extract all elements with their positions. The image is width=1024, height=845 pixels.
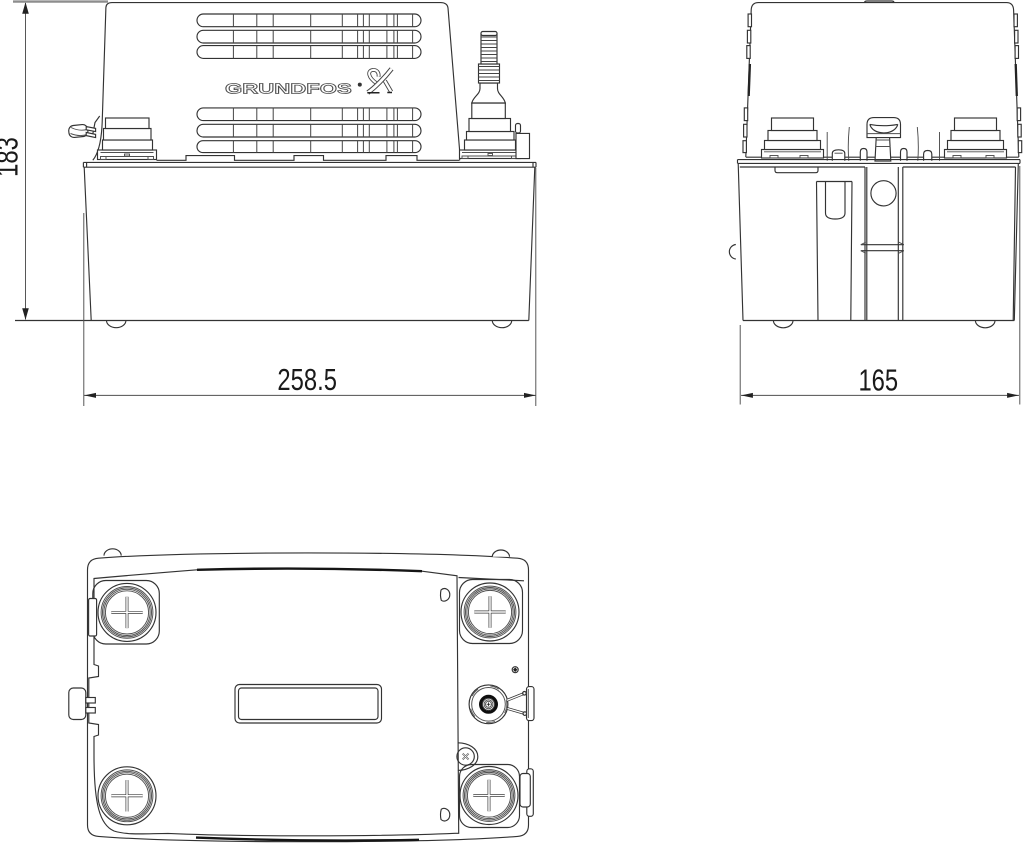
svg-text:165: 165 — [858, 363, 898, 398]
svg-text:258.5: 258.5 — [277, 362, 337, 397]
svg-text:GRUNDFOS: GRUNDFOS — [225, 80, 352, 97]
svg-text:183: 183 — [0, 137, 24, 177]
